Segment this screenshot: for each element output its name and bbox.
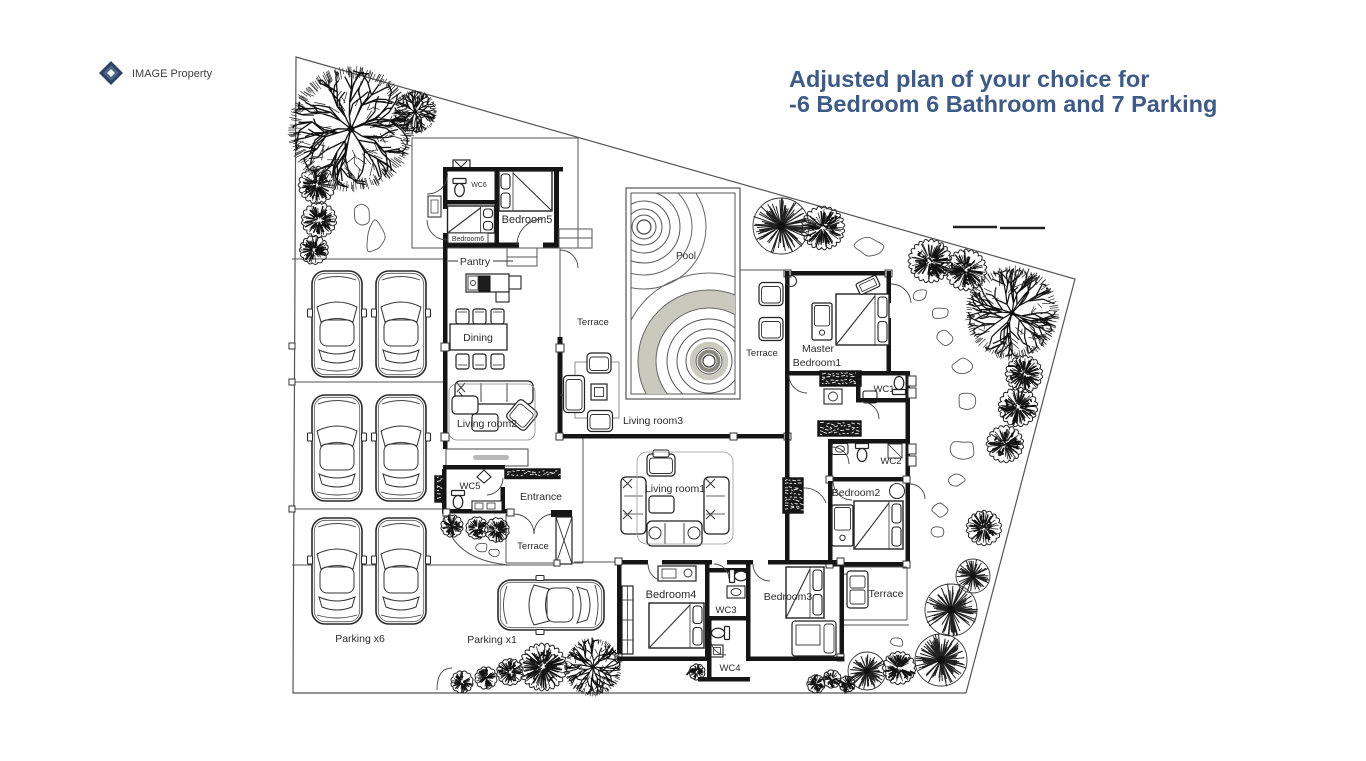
svg-text:Terrace: Terrace bbox=[868, 588, 903, 600]
svg-text:Terrace: Terrace bbox=[746, 348, 778, 359]
svg-text:Terrace: Terrace bbox=[577, 317, 609, 328]
svg-text:Pool: Pool bbox=[676, 251, 696, 262]
svg-text:WC6: WC6 bbox=[471, 182, 487, 189]
svg-text:Bedroom2: Bedroom2 bbox=[832, 487, 881, 499]
svg-text:Bedroom4: Bedroom4 bbox=[646, 589, 697, 601]
svg-text:Bedroom6: Bedroom6 bbox=[452, 236, 484, 243]
svg-text:IMAGE Property: IMAGE Property bbox=[132, 68, 213, 80]
svg-text:Living room1: Living room1 bbox=[645, 483, 705, 495]
svg-text:WC4: WC4 bbox=[719, 663, 740, 674]
svg-text:Master: Master bbox=[802, 343, 835, 355]
svg-text:Bedroom1: Bedroom1 bbox=[793, 357, 842, 369]
svg-text:WC1: WC1 bbox=[873, 384, 894, 395]
svg-text:Living room3: Living room3 bbox=[623, 415, 683, 427]
svg-text:Parking x1: Parking x1 bbox=[467, 634, 517, 646]
svg-text:Parking x6: Parking x6 bbox=[335, 633, 385, 645]
svg-text:Entrance: Entrance bbox=[520, 491, 562, 503]
svg-text:Terrace: Terrace bbox=[517, 541, 549, 552]
svg-text:-6 Bedroom 6 Bathroom and 7 Pa: -6 Bedroom 6 Bathroom and 7 Parking bbox=[789, 91, 1217, 117]
svg-text:WC2: WC2 bbox=[880, 456, 901, 467]
svg-text:Dining: Dining bbox=[463, 332, 493, 344]
svg-text:WC3: WC3 bbox=[715, 605, 736, 616]
svg-text:Adjusted plan of your choice f: Adjusted plan of your choice for bbox=[789, 66, 1149, 92]
svg-text:Living room2: Living room2 bbox=[457, 418, 517, 430]
svg-text:Bedroom3: Bedroom3 bbox=[764, 591, 813, 603]
svg-text:Pantry: Pantry bbox=[460, 256, 491, 268]
svg-text:WC5: WC5 bbox=[459, 481, 480, 492]
